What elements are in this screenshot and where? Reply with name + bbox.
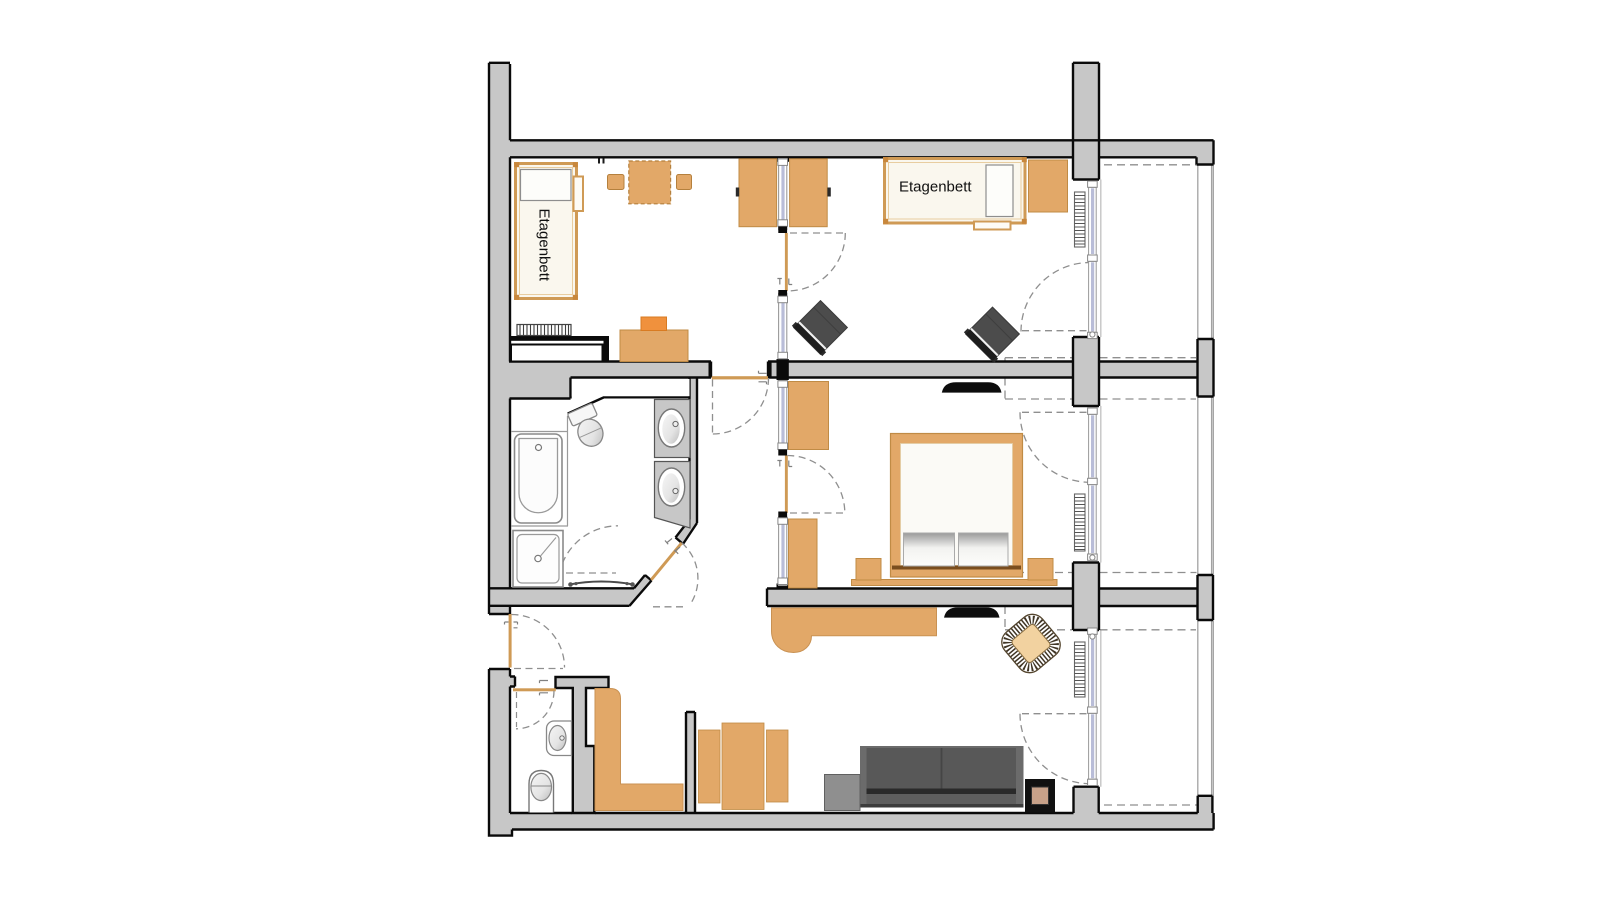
svg-text:Etagenbett: Etagenbett	[536, 209, 553, 282]
svg-text:Etagenbett: Etagenbett	[899, 179, 972, 196]
